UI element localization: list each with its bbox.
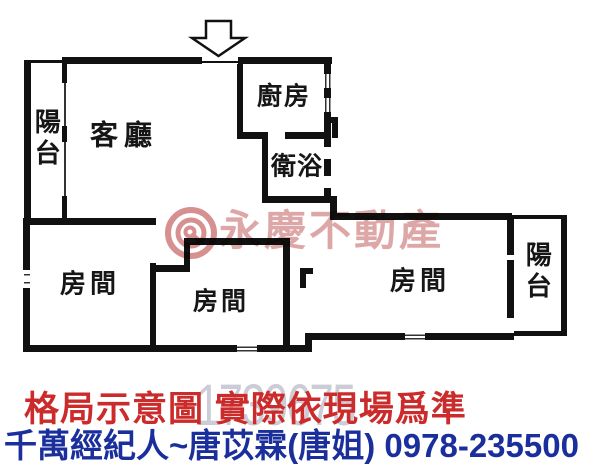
room-label-bedroom-left: 房間 [60,271,120,298]
room-label-bedroom-middle: 房間 [193,289,249,315]
room-label-balcony-left: 陽台 [33,108,60,170]
entrance-arrow-icon [192,21,245,56]
room-label-bedroom-right: 房間 [390,268,450,295]
room-label-bathroom: 衛浴 [271,154,323,180]
floor-plan-page: 1739675 永慶不動產 陽台 客廳 廚房 衛浴 房間 房間 房間 陽台 格局… [0,0,600,467]
agent-contact-text: 千萬經紀人~唐苡霖(唐姐) 0978-235500 [4,419,579,467]
room-label-balcony-right: 陽台 [524,241,551,303]
room-label-living-room: 客廳 [90,122,158,151]
room-label-kitchen: 廚房 [257,84,311,110]
